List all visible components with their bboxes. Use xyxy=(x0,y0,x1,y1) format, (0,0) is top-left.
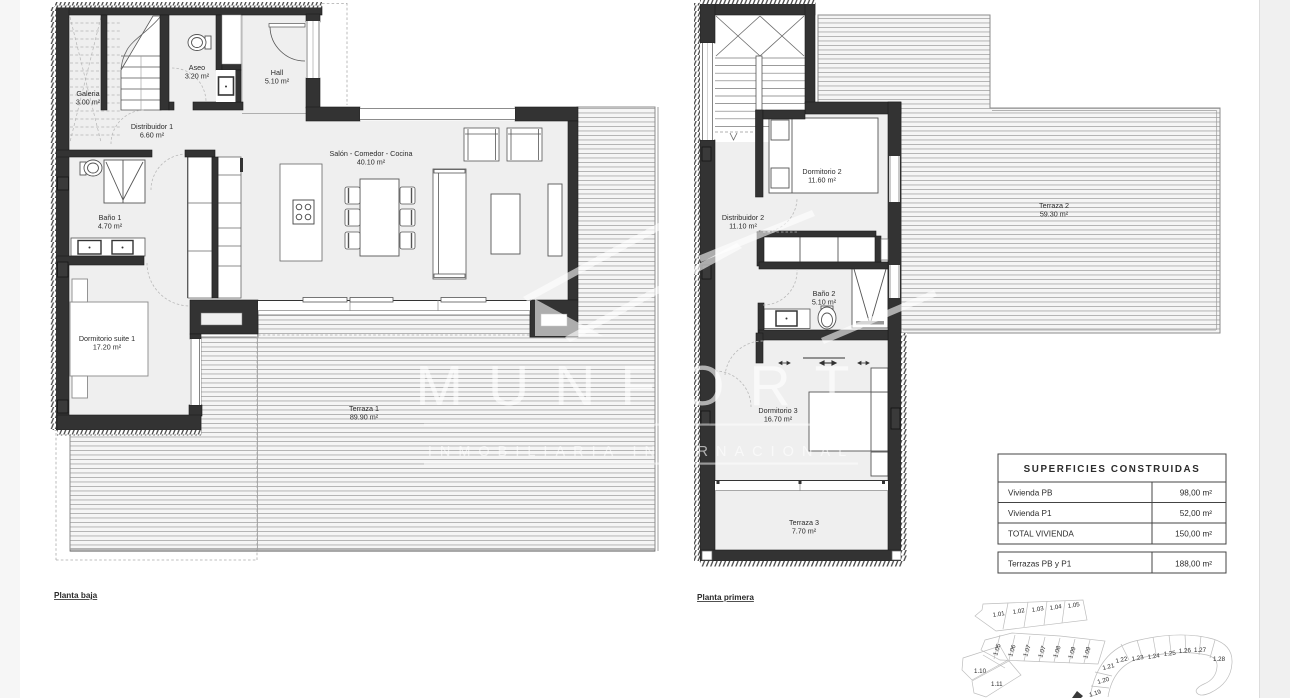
svg-text:98,00 m²: 98,00 m² xyxy=(1180,489,1213,498)
svg-text:1.26: 1.26 xyxy=(1179,647,1192,655)
svg-text:3.20 m²: 3.20 m² xyxy=(185,72,210,81)
svg-text:1.11: 1.11 xyxy=(991,681,1003,688)
svg-text:3.00 m²: 3.00 m² xyxy=(76,98,101,107)
svg-text:TOTAL VIVIENDA: TOTAL VIVIENDA xyxy=(1008,530,1074,539)
svg-text:INMOBILIARIA INTERNACIONAL: INMOBILIARIA INTERNACIONAL xyxy=(428,444,854,460)
svg-text:1.28: 1.28 xyxy=(1213,656,1226,663)
svg-text:SUPERFICIES CONSTRUIDAS: SUPERFICIES CONSTRUIDAS xyxy=(1024,464,1201,475)
svg-text:5.10 m²: 5.10 m² xyxy=(265,77,290,86)
svg-text:Vivienda PB: Vivienda PB xyxy=(1008,489,1053,498)
svg-text:52,00 m²: 52,00 m² xyxy=(1180,509,1213,518)
svg-text:4.70 m²: 4.70 m² xyxy=(98,222,123,231)
svg-text:Terrazas PB y P1: Terrazas PB y P1 xyxy=(1008,560,1072,569)
svg-text:17.20 m²: 17.20 m² xyxy=(93,343,122,352)
svg-text:1.25: 1.25 xyxy=(1163,650,1176,658)
svg-text:Planta baja: Planta baja xyxy=(54,591,98,600)
svg-text:11.60 m²: 11.60 m² xyxy=(808,176,836,185)
svg-text:1.27: 1.27 xyxy=(1194,647,1207,654)
svg-text:188,00 m²: 188,00 m² xyxy=(1175,560,1212,569)
svg-text:Planta primera: Planta primera xyxy=(697,593,754,602)
svg-text:Vivienda P1: Vivienda P1 xyxy=(1008,509,1052,518)
svg-text:89.90 m²: 89.90 m² xyxy=(350,413,379,422)
svg-text:40.10 m²: 40.10 m² xyxy=(357,158,386,167)
svg-text:5.10 m²: 5.10 m² xyxy=(812,298,837,307)
svg-text:59.30 m²: 59.30 m² xyxy=(1040,210,1069,219)
svg-text:6.60 m²: 6.60 m² xyxy=(140,131,165,140)
svg-text:11.10 m²: 11.10 m² xyxy=(729,222,757,231)
svg-text:7.70 m²: 7.70 m² xyxy=(792,527,817,536)
svg-text:150,00 m²: 150,00 m² xyxy=(1175,530,1212,539)
svg-text:MUNFORT: MUNFORT xyxy=(416,354,875,418)
svg-text:1.10: 1.10 xyxy=(974,668,987,675)
